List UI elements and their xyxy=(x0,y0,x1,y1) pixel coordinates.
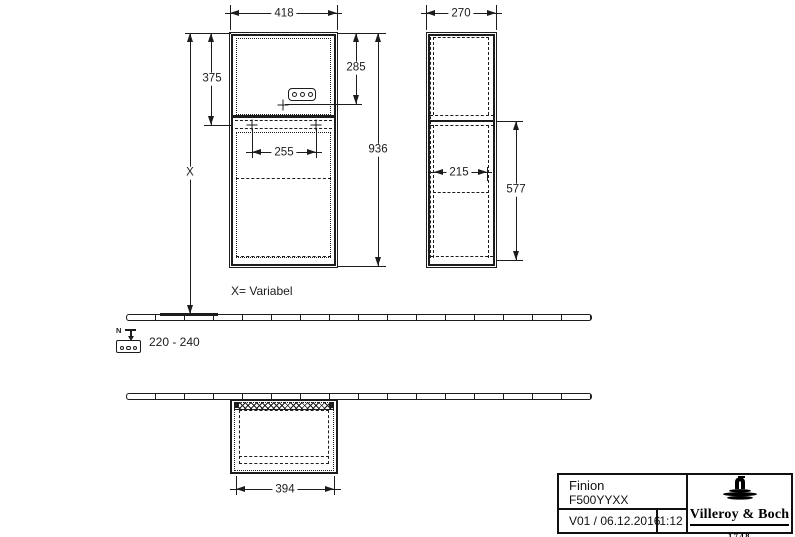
dim-label-front-width: 418 xyxy=(271,8,296,21)
side-bottom-panel-hidden xyxy=(431,256,493,257)
drawing-scale: 1:12 xyxy=(658,515,684,529)
dim-label-plan-width: 394 xyxy=(272,484,297,497)
dim-label-hanger-spacing: 255 xyxy=(271,147,296,160)
plan-front-edge-hidden xyxy=(239,456,329,457)
arrowhead xyxy=(187,33,193,42)
brand-year: 1748 xyxy=(728,531,751,537)
arrowhead xyxy=(325,486,334,492)
ext-line xyxy=(497,121,523,122)
titleblock-divider xyxy=(559,508,688,510)
arrowhead xyxy=(187,305,193,314)
arrowhead xyxy=(434,169,443,175)
dim-label-lower-height: 577 xyxy=(503,184,528,197)
ext-line xyxy=(496,5,497,30)
technical-drawing-canvas: 418 270 375 X 285 936 xyxy=(0,0,795,537)
ext-line xyxy=(285,104,362,105)
villeroy-boch-logo-icon xyxy=(718,476,762,500)
dim-label-depth: 270 xyxy=(448,8,473,21)
arrowhead xyxy=(208,116,214,125)
arrowhead xyxy=(513,251,519,260)
arrowhead xyxy=(307,149,316,155)
ext-line xyxy=(316,129,317,158)
side-shelf-hidden-top xyxy=(430,115,494,116)
brand-name: Villeroy & Boch xyxy=(690,507,789,526)
voltage-label: 220 - 240 xyxy=(149,335,200,349)
power-socket-icon xyxy=(288,88,316,101)
ext-line xyxy=(487,167,488,181)
shelf-panel xyxy=(233,115,334,118)
dim-label-upper-height: 375 xyxy=(199,73,224,86)
arrowhead xyxy=(426,10,435,16)
product-name: Finion xyxy=(569,479,604,494)
ext-line xyxy=(337,5,338,30)
socket-center-cross xyxy=(278,100,289,111)
variable-note: X= Variabel xyxy=(231,284,292,298)
version-date: V01 / 06.12.2016 xyxy=(569,515,660,529)
arrowhead xyxy=(487,10,496,16)
dim-label-variable: X xyxy=(183,167,197,180)
arrowhead xyxy=(375,33,381,42)
arrowhead xyxy=(230,10,239,16)
arrowhead xyxy=(353,95,359,104)
arrowhead xyxy=(208,33,214,42)
dim-label-socket-height: 285 xyxy=(343,62,368,75)
bottom-panel-hidden xyxy=(236,256,331,257)
arrowhead xyxy=(513,121,519,130)
title-block: Finion F500YYXX V01 / 06.12.2016 1:12 Vi… xyxy=(557,473,793,534)
arrowhead xyxy=(252,149,261,155)
side-door-outline-hidden xyxy=(433,37,489,115)
brand-cell: Villeroy & Boch 1748 xyxy=(688,475,791,532)
ext-line xyxy=(204,125,232,126)
dim-label-total-height: 936 xyxy=(365,144,390,157)
ext-line xyxy=(334,476,335,495)
ext-line xyxy=(338,266,386,267)
article-number: F500YYXX xyxy=(569,494,628,508)
wall-line-plan xyxy=(126,393,592,400)
ext-line xyxy=(426,5,427,30)
arrowhead xyxy=(353,33,359,42)
side-back-edge-hidden xyxy=(430,37,431,258)
neutral-label: N xyxy=(116,326,121,335)
dim-label-inner-depth: 215 xyxy=(446,167,471,180)
side-shelf-panel xyxy=(430,120,494,122)
ext-line xyxy=(497,260,523,261)
ext-line xyxy=(230,5,231,30)
arrowhead xyxy=(375,257,381,266)
middle-shelf-hidden xyxy=(236,178,331,179)
arrowhead xyxy=(236,486,245,492)
side-middle-shelf-hidden xyxy=(433,192,489,193)
arrowhead xyxy=(328,10,337,16)
arrowhead xyxy=(478,169,487,175)
socket-box-icon xyxy=(116,340,141,353)
side-shelf-hidden-bottom xyxy=(430,125,494,126)
